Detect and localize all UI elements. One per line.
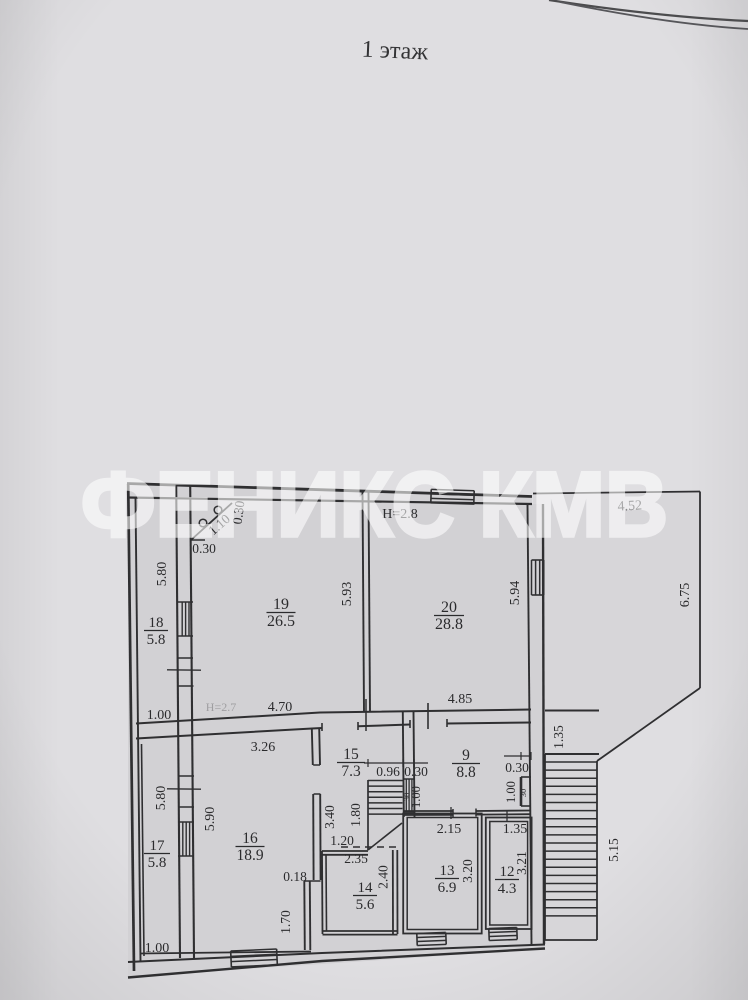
- svg-text:0.30: 0.30: [404, 764, 428, 779]
- svg-text:1.00: 1.00: [504, 781, 518, 803]
- svg-text:0.96: 0.96: [376, 764, 400, 779]
- svg-text:8.8: 8.8: [456, 764, 476, 781]
- svg-text:4.3: 4.3: [498, 881, 517, 897]
- svg-text:19: 19: [273, 596, 289, 613]
- svg-text:1.80: 1.80: [348, 803, 363, 827]
- svg-text:1 этаж: 1 этаж: [361, 37, 429, 66]
- svg-text:3.20: 3.20: [460, 859, 475, 883]
- svg-text:30: 30: [518, 789, 528, 798]
- svg-text:9: 9: [462, 747, 470, 764]
- svg-text:7.3: 7.3: [341, 763, 361, 780]
- svg-text:13: 13: [440, 863, 455, 879]
- svg-text:5.8: 5.8: [148, 855, 167, 871]
- svg-text:1.00: 1.00: [145, 941, 170, 956]
- svg-text:3.40: 3.40: [322, 805, 337, 829]
- svg-text:17: 17: [150, 838, 166, 854]
- svg-text:1.00: 1.00: [147, 708, 172, 723]
- svg-text:0.18: 0.18: [283, 869, 307, 884]
- svg-text:3.21: 3.21: [514, 851, 529, 875]
- svg-text:16: 16: [242, 830, 258, 847]
- svg-text:5.94: 5.94: [508, 581, 523, 606]
- svg-text:2.15: 2.15: [437, 822, 462, 837]
- svg-text:14: 14: [358, 880, 374, 896]
- svg-text:ФЕНИКС КМВ: ФЕНИКС КМВ: [81, 454, 668, 556]
- svg-text:6.75: 6.75: [678, 583, 693, 608]
- svg-text:0.30: 0.30: [505, 760, 529, 775]
- svg-text:5.6: 5.6: [356, 897, 375, 913]
- svg-text:28.8: 28.8: [435, 616, 463, 633]
- svg-text:6.9: 6.9: [438, 880, 457, 896]
- svg-text:18.9: 18.9: [236, 847, 263, 864]
- svg-text:5.80: 5.80: [154, 786, 169, 811]
- svg-text:1.35: 1.35: [551, 725, 566, 749]
- svg-text:5.93: 5.93: [340, 582, 355, 607]
- svg-text:20: 20: [441, 599, 457, 616]
- svg-text:1.35: 1.35: [503, 822, 528, 837]
- svg-text:4.70: 4.70: [268, 700, 293, 715]
- svg-text:5.8: 5.8: [147, 632, 166, 648]
- svg-text:1.20: 1.20: [330, 833, 354, 848]
- svg-text:18: 18: [149, 615, 164, 631]
- svg-text:5.15: 5.15: [606, 838, 621, 862]
- svg-text:2.35: 2.35: [344, 851, 368, 866]
- svg-text:2.40: 2.40: [376, 865, 391, 889]
- svg-text:5.90: 5.90: [203, 807, 218, 832]
- svg-text:Н=2.7: Н=2.7: [206, 700, 236, 714]
- svg-text:15: 15: [343, 746, 359, 763]
- svg-text:3.26: 3.26: [251, 740, 276, 755]
- svg-text:26.5: 26.5: [267, 613, 295, 630]
- svg-text:4.85: 4.85: [448, 692, 473, 707]
- svg-text:5.80: 5.80: [155, 562, 170, 587]
- svg-text:12: 12: [500, 864, 515, 880]
- svg-text:1.70: 1.70: [278, 910, 293, 934]
- svg-text:30: 30: [402, 793, 412, 802]
